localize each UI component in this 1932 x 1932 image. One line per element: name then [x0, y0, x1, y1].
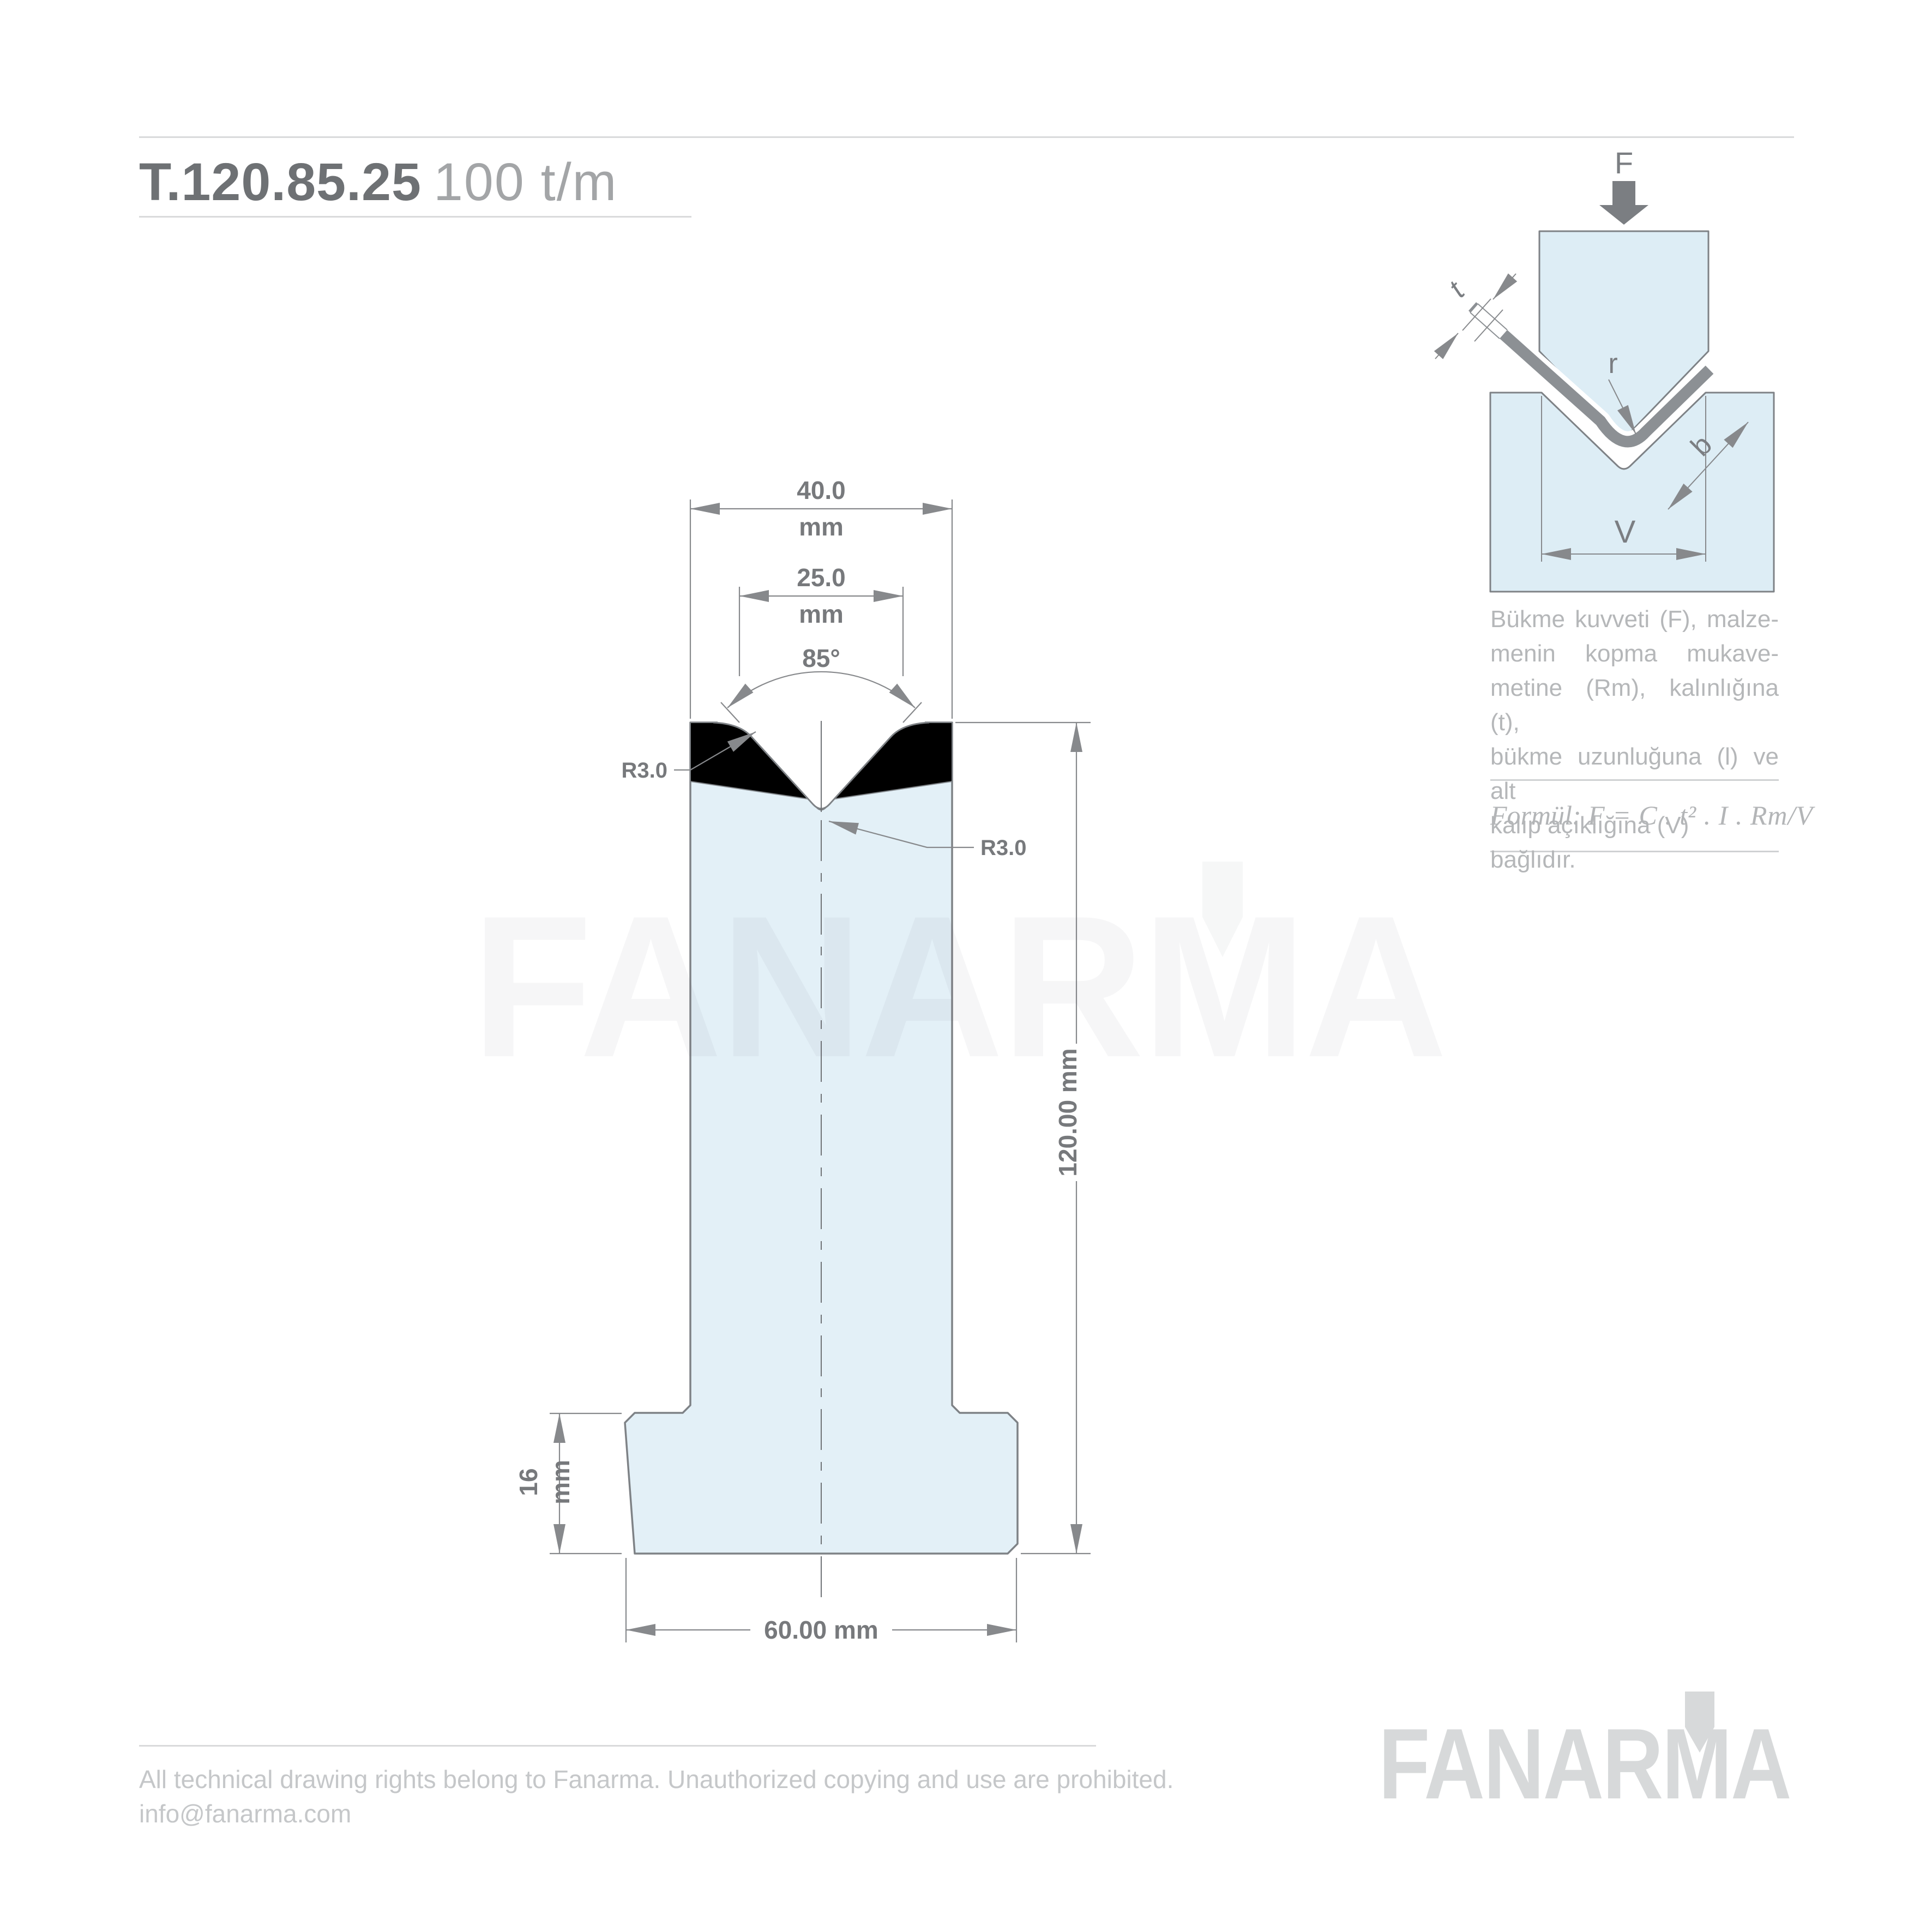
radius-right-label: R3.0: [980, 836, 1027, 860]
force-arrow-head: [1599, 205, 1648, 225]
technical-drawing: 40.0 mm 25.0 mm 85° R3.0 R3.0 120.00 mm …: [0, 0, 1932, 1932]
die-cross-section: [625, 720, 1018, 1603]
fanarma-logo: FANARMA: [1379, 1713, 1826, 1814]
drawing-sheet: T.120.85.25100 t/m: [0, 0, 1932, 1932]
dim-vee-width-value: 25.0: [797, 563, 846, 592]
bending-principle-inset: F t r b V: [1435, 146, 1774, 592]
thickness-arrow: [1435, 333, 1458, 359]
formula-expression: F = C . t² . I . Rm/V: [1588, 800, 1813, 830]
thickness-label: t: [1443, 275, 1472, 304]
thickness-arrow: [1493, 274, 1516, 299]
force-label: F: [1615, 146, 1633, 180]
formula-prefix: Formül:: [1490, 800, 1581, 830]
bending-force-formula: Formül: F = C . t² . I . Rm/V: [1490, 799, 1779, 831]
logo-text: FANARMA: [1379, 1713, 1790, 1814]
bending-force-description: Bükme kuvveti (F), malze- menin kopma mu…: [1490, 602, 1779, 877]
dim-vee-width-unit: mm: [799, 600, 844, 628]
dim-top-width-unit: mm: [799, 513, 844, 541]
dim-base-width-label: 60.00 mm: [764, 1616, 878, 1644]
contact-email: info@fanarma.com: [139, 1797, 1175, 1831]
vee-opening-label: V: [1615, 514, 1636, 550]
dim-arc-angle: [727, 672, 915, 708]
radius-left-label: R3.0: [622, 759, 668, 783]
description-line: bükme uzunluğuna (l) ve alt: [1490, 739, 1779, 808]
description-line: Bükme kuvveti (F), malze-: [1490, 602, 1779, 636]
copyright-text: All technical drawing rights belong to F…: [139, 1762, 1175, 1797]
dim-base-height-unit: mm: [546, 1460, 575, 1504]
dim-angle-label: 85°: [802, 644, 840, 672]
dim-base-height-value: 16: [514, 1468, 543, 1496]
bend-radius-label: r: [1608, 348, 1617, 380]
copyright-block: All technical drawing rights belong to F…: [139, 1762, 1175, 1831]
dim-top-width-value: 40.0: [797, 476, 846, 504]
description-line: metine (Rm), kalınlığına (t),: [1490, 671, 1779, 739]
dim-height-label: 120.00 mm: [1054, 1048, 1082, 1176]
force-arrow-shaft: [1612, 181, 1635, 205]
description-line: menin kopma mukave-: [1490, 636, 1779, 671]
